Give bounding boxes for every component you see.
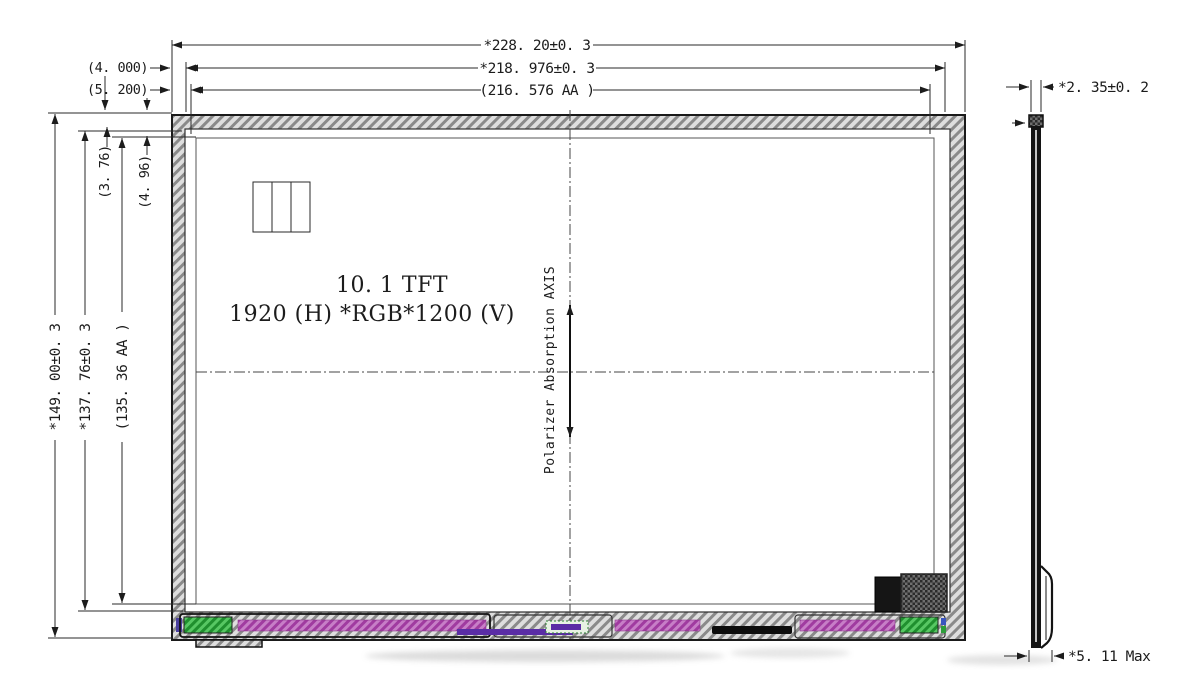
polarizer-axis-label: Polarizer Absorption AXIS [543,266,558,474]
panel-resolution-label: 1920 (H) *RGB*1200 (V) [229,302,515,327]
strip-right-tiny-chip-green [941,626,946,633]
scan-shadows [365,648,1057,665]
lcd-outline-drawing: Polarizer Absorption AXIS 10. 1 TFT 1920… [0,0,1194,678]
front-view: Polarizer Absorption AXIS 10. 1 TFT 1920… [172,110,965,647]
dim-top-aa-label: (216. 576 AA ) [479,83,594,99]
strip-left-tiny-chip [176,618,182,632]
glass-area [185,129,950,612]
strip-fpc-magenta-1 [238,620,486,631]
dim-left-outline-label: *149. 00±0. 3 [48,324,64,431]
strip-right-tiny-chip-blue [941,618,946,625]
driver-ic-checker [901,574,947,612]
side-top-cap [1029,115,1043,127]
strip-center-label-text [551,624,581,630]
dim-left-glass-label: *137. 76±0. 3 [78,324,94,431]
dim-left-aa-label: (135. 36 AA ) [115,324,131,431]
dim-side-max-label: *5. 11 Max [1068,649,1151,665]
dim-top-glass-label: *218. 976±0. 3 [479,61,594,77]
bottom-left-step [196,640,262,647]
driver-ic-black [875,577,901,612]
dim-offset-5200-label: (5. 200) [87,82,148,98]
dim-side-thickness-label: *2. 35±0. 2 [1058,80,1149,96]
mechanical-drawing-page: Polarizer Absorption AXIS 10. 1 TFT 1920… [0,0,1194,678]
side-view: *2. 35±0. 2 *5. 11 Max [1004,80,1151,665]
dim-offset-496-label: (4. 96) [137,155,153,208]
dim-offset-4000-label: (4. 000) [87,60,148,76]
panel-size-label: 10. 1 TFT [336,273,448,298]
strip-fpc-magenta-3 [800,620,895,631]
strip-black-connector [712,626,792,634]
dim-top-outline-label: *228. 20±0. 3 [484,38,591,54]
strip-green-chip-right [900,617,938,633]
dim-offset-376-label: (3. 76) [97,145,113,198]
strip-fpc-magenta-2 [615,620,700,631]
strip-green-chip-left [184,617,232,633]
